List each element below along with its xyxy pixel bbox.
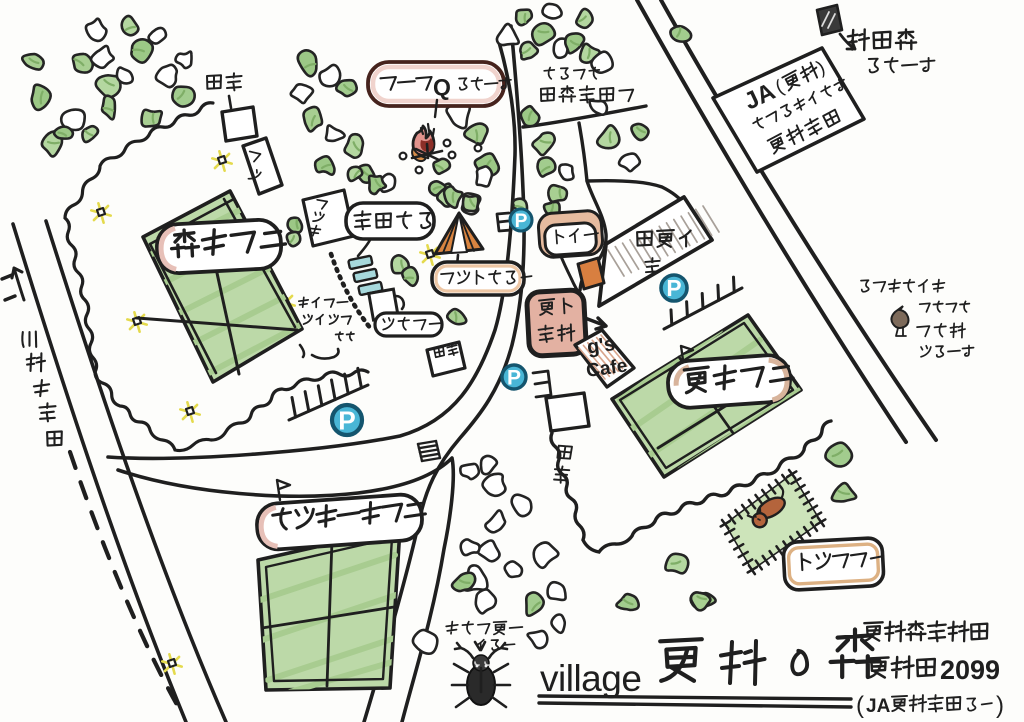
svg-text:P: P	[515, 211, 528, 232]
svg-text:): )	[996, 692, 1004, 719]
svg-text:g's: g's	[586, 333, 617, 359]
svg-text:P: P	[338, 405, 355, 435]
svg-text:2099: 2099	[940, 655, 1000, 685]
svg-text:P: P	[507, 366, 521, 389]
svg-text:(: (	[856, 692, 864, 719]
svg-text:JA: JA	[866, 696, 891, 717]
svg-text:P: P	[666, 275, 681, 301]
svg-text:Q: Q	[433, 74, 451, 100]
svg-text:village: village	[540, 658, 641, 699]
